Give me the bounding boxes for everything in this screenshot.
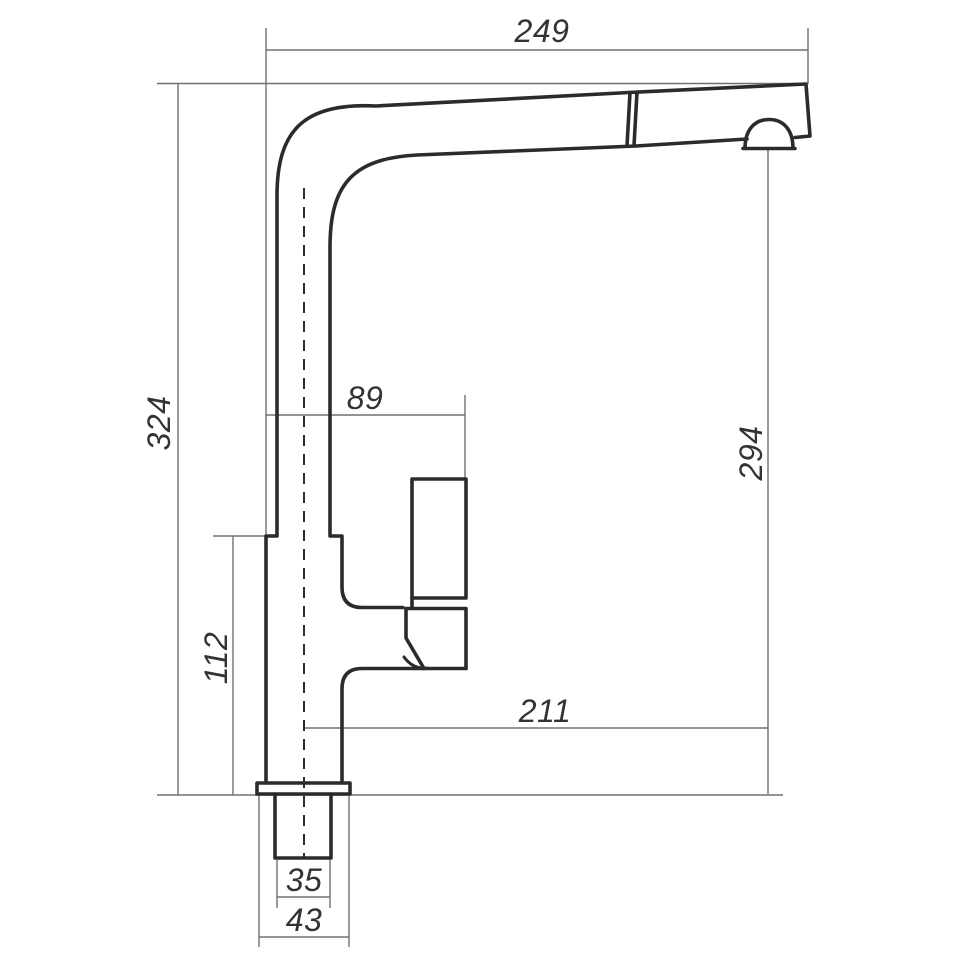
- handle-cap: [406, 598, 466, 669]
- lever-handle: [412, 479, 466, 598]
- base-flange: [257, 783, 350, 794]
- dim-label-body-to-handle: 89: [347, 380, 384, 416]
- dim-label-overall-height: 324: [141, 396, 177, 451]
- dim-label-body-height: 112: [198, 632, 234, 685]
- aerator-dome: [743, 120, 795, 149]
- body-lower-right-profile: [342, 669, 466, 784]
- faucet-dimension-drawing: 249 324 89 294 112 211 35 43: [0, 0, 970, 970]
- pullout-head-joint: [627, 92, 637, 146]
- faucet-outline: [257, 84, 810, 859]
- drawing-canvas: 249 324 89 294 112 211 35 43: [0, 0, 970, 970]
- dim-label-spout-reach: 249: [514, 13, 570, 49]
- dimension-lines: [157, 28, 808, 947]
- dim-label-shank-width: 35: [286, 862, 323, 898]
- dim-label-flange-width: 43: [286, 902, 323, 938]
- dim-label-center-reach: 211: [518, 693, 572, 729]
- spout-inner-profile: [330, 139, 747, 608]
- spout-outer-profile: [266, 84, 810, 783]
- dim-label-aerator-height: 294: [733, 426, 769, 482]
